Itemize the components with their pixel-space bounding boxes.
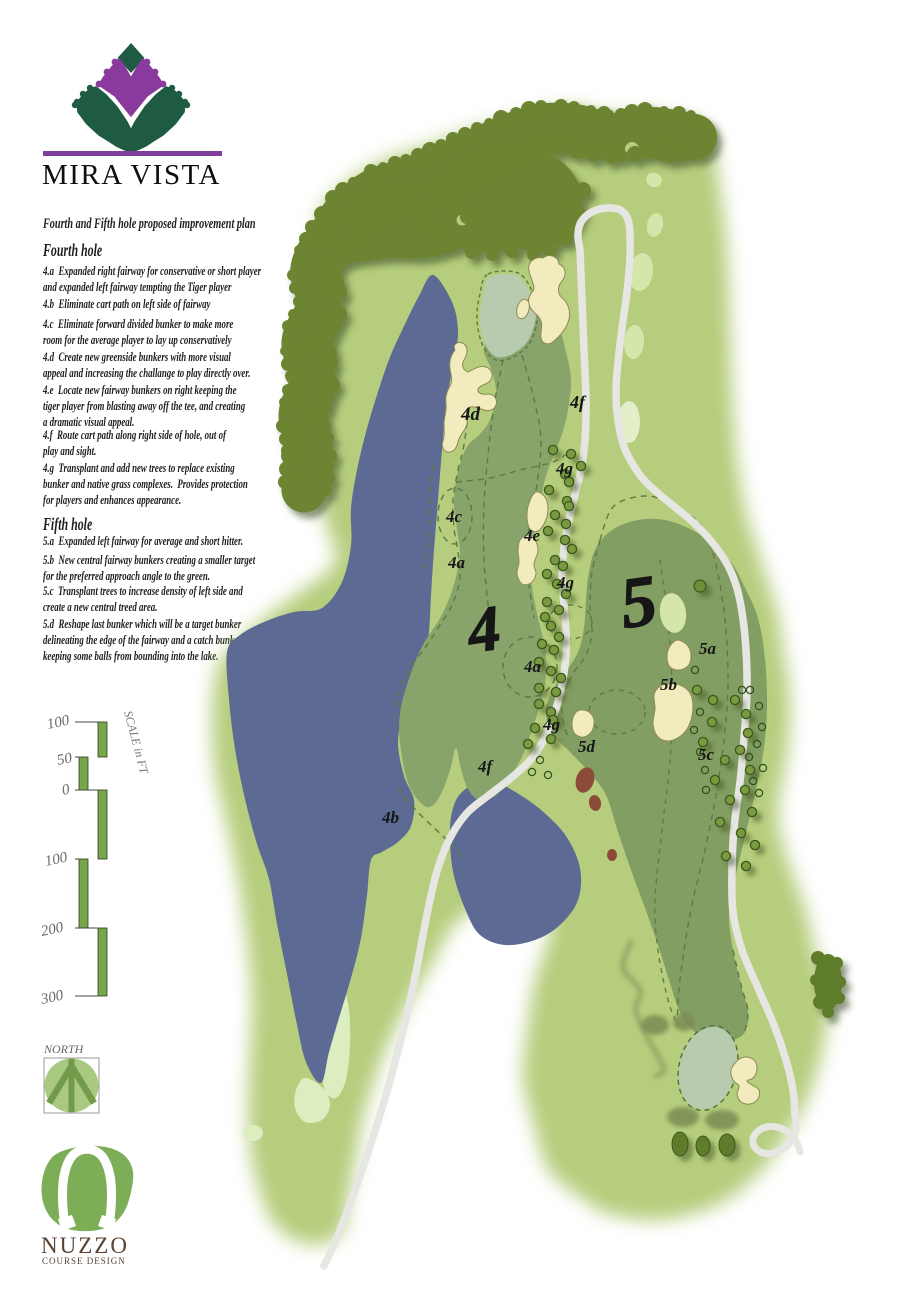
svg-text:100: 100	[44, 849, 70, 869]
svg-text:NUZZO: NUZZO	[41, 1233, 129, 1258]
svg-text:4c: 4c	[445, 507, 463, 526]
svg-text:4b: 4b	[381, 808, 399, 827]
svg-text:4e: 4e	[523, 526, 541, 545]
svg-text:300: 300	[39, 987, 66, 1008]
svg-text:4a: 4a	[447, 553, 466, 572]
svg-text:5d: 5d	[578, 737, 596, 756]
svg-text:4f: 4f	[569, 392, 587, 412]
svg-text:4g: 4g	[542, 715, 561, 734]
svg-text:SCALE in FT: SCALE in FT	[121, 709, 152, 776]
svg-text:50: 50	[56, 750, 74, 769]
svg-text:4f: 4f	[477, 757, 495, 776]
svg-text:4a: 4a	[523, 657, 542, 676]
svg-text:0: 0	[61, 782, 72, 799]
svg-text:5c: 5c	[698, 745, 715, 764]
svg-text:4g: 4g	[555, 459, 574, 478]
svg-text:200: 200	[40, 919, 66, 939]
svg-text:4d: 4d	[460, 404, 481, 425]
svg-text:5a: 5a	[699, 639, 717, 658]
svg-text:NORTH: NORTH	[43, 1042, 85, 1056]
svg-text:5b: 5b	[660, 675, 677, 694]
svg-text:COURSE DESIGN: COURSE DESIGN	[42, 1256, 126, 1266]
svg-text:4g: 4g	[556, 573, 575, 592]
svg-text:100: 100	[46, 712, 72, 732]
